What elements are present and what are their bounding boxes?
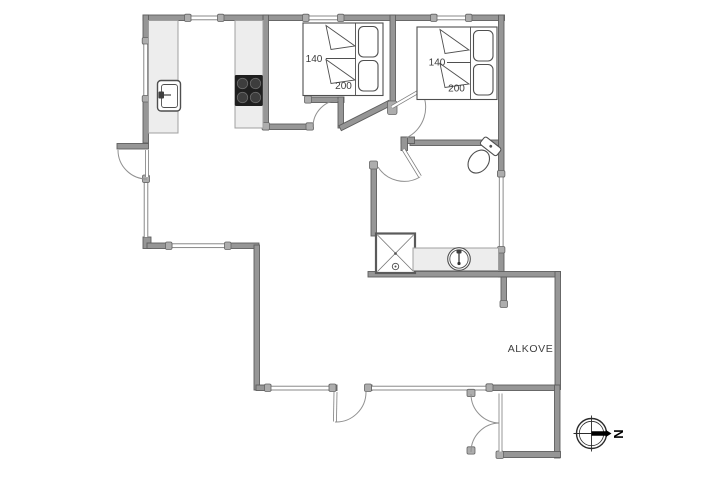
bathroom-west-wall [371,162,377,236]
kitchen-sink [158,81,181,112]
stove-cooktop [235,75,263,106]
pillow-icon [359,27,379,58]
hall-diagonal-wall [339,100,391,130]
compass-north-indicator: N [574,416,627,452]
bathroom-door [378,150,420,182]
burner-icon [250,92,260,102]
bed-width-label: 140 [306,54,323,65]
pillow-icon [474,31,494,62]
kitchen-wall [263,15,269,130]
bed-bedroom2: 140 200 [417,27,497,100]
kitchen-island-counter [235,21,263,129]
window-kitchen-north [191,16,219,20]
bed-length-label: 200 [448,84,465,95]
bathroom-door-jamb-v [401,137,408,151]
compass-north-letter: N [611,429,626,438]
pillow-icon [359,61,379,92]
window-bedroom1-north [309,16,339,20]
faucet-icon [159,92,165,99]
bed-length-label: 200 [335,81,352,92]
shed-french-doors [471,394,501,453]
burner-icon [237,78,247,88]
bedroom1-door [313,100,340,127]
bedroom2-west-wall [390,15,396,104]
window-bedroom2-north [437,16,467,20]
kitchen-counter-west [149,21,179,134]
floor-plan-drawing: 140 200 140 200 ALKOVE [0,0,718,479]
window-living-south-1 [271,386,330,390]
shower [376,234,415,274]
burner-icon [250,78,260,88]
window-bathroom-east [499,177,503,248]
window-living-southwest [172,244,225,248]
terrace-door-south [335,392,366,422]
washbasin [448,248,471,271]
window-kitchen-west [144,44,148,97]
burner-icon [237,92,247,102]
pillow-icon [474,65,494,96]
floor-plan: 140 200 140 200 ALKOVE [0,0,718,479]
alkove-room-label: ALKOVE [508,343,554,355]
bed-bedroom1: 140 200 [303,23,383,96]
window-living-west [144,183,148,238]
entry-door-west [118,150,147,179]
bed-width-label: 140 [429,58,446,69]
